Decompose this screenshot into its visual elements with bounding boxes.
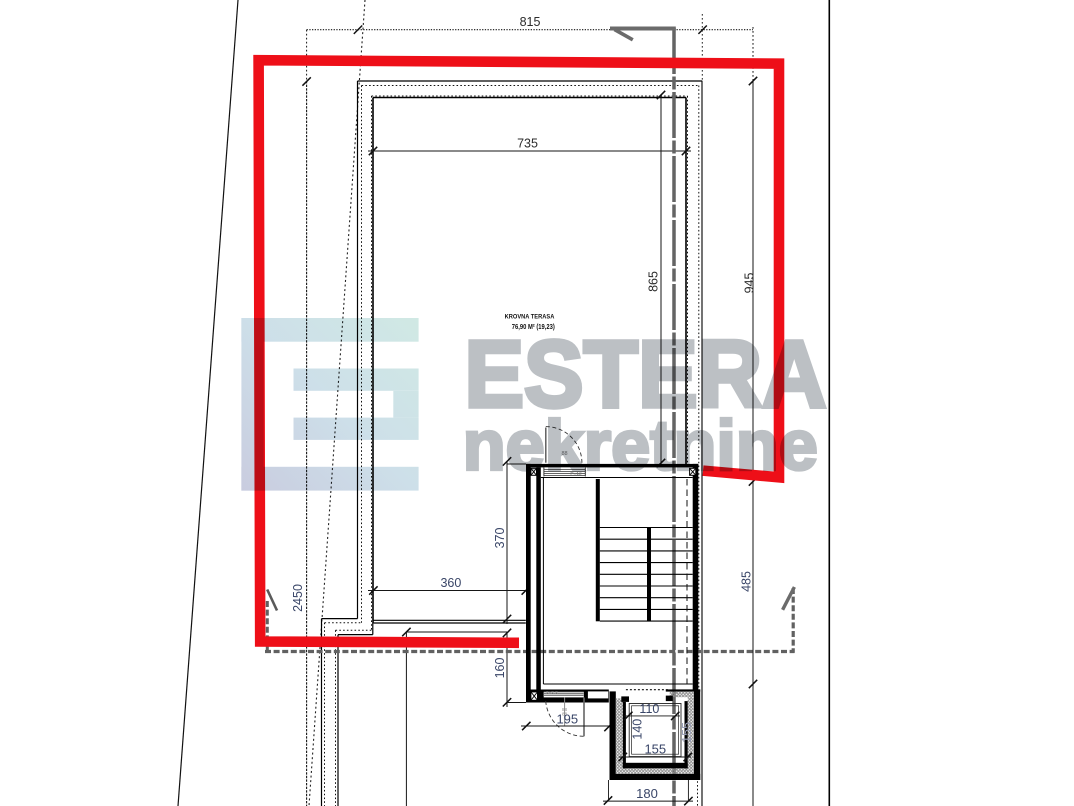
- svg-text:945: 945: [743, 273, 757, 294]
- svg-text:485: 485: [740, 571, 754, 592]
- svg-text:110: 110: [639, 702, 659, 716]
- svg-text:180: 180: [636, 786, 658, 801]
- svg-text:155: 155: [644, 742, 666, 757]
- svg-text:195: 195: [556, 712, 578, 727]
- svg-text:2450: 2450: [291, 584, 305, 612]
- svg-text:155: 155: [680, 722, 694, 743]
- svg-text:160: 160: [493, 658, 507, 679]
- svg-text:KROVNA TERASA: KROVNA TERASA: [505, 313, 555, 320]
- svg-text:360: 360: [440, 576, 461, 590]
- svg-text:735: 735: [517, 137, 538, 151]
- svg-text:8+8-8: 8+8-8: [546, 690, 558, 695]
- svg-text:370: 370: [493, 528, 507, 549]
- svg-text:815: 815: [520, 15, 541, 29]
- svg-text:140: 140: [631, 719, 645, 740]
- svg-text:nekretnine: nekretnine: [463, 405, 818, 484]
- svg-text:865: 865: [647, 271, 661, 292]
